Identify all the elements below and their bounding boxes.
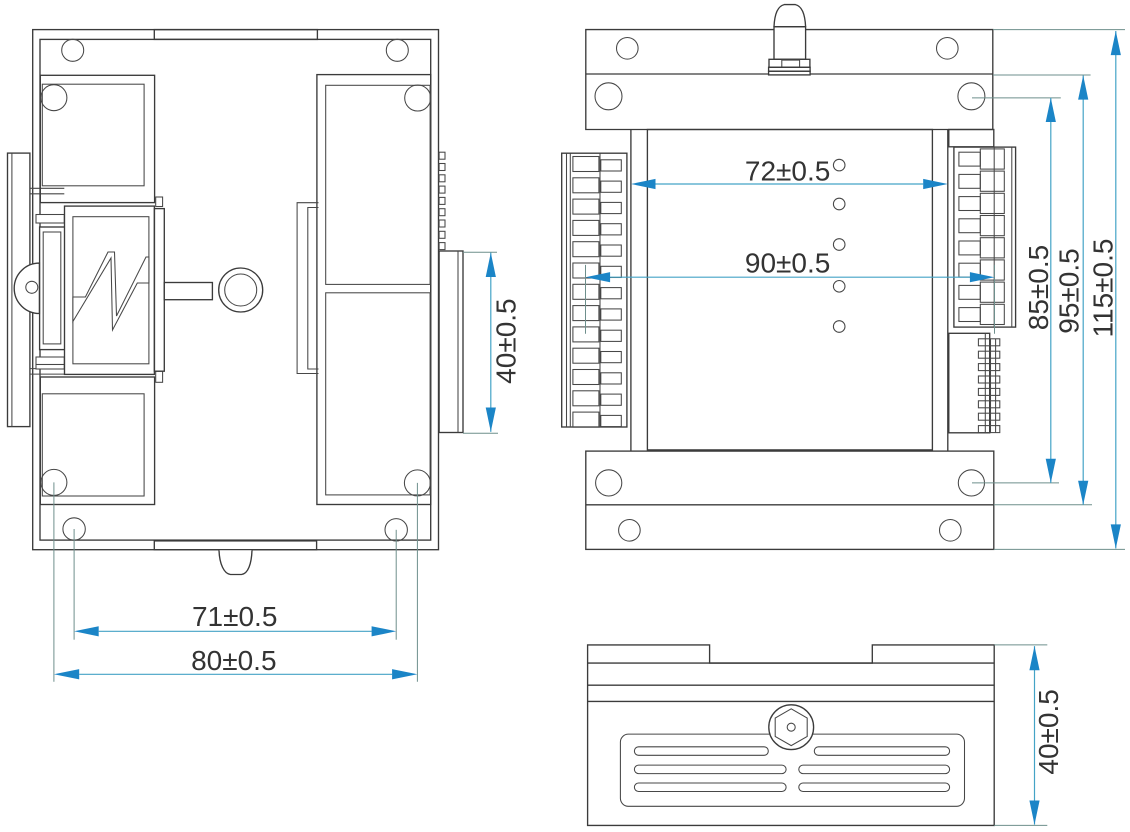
svg-text:40±0.5: 40±0.5 — [1033, 689, 1064, 774]
svg-text:95±0.5: 95±0.5 — [1054, 248, 1085, 333]
svg-text:72±0.5: 72±0.5 — [745, 156, 830, 187]
svg-text:85±0.5: 85±0.5 — [1023, 245, 1054, 330]
svg-text:90±0.5: 90±0.5 — [745, 248, 830, 279]
svg-text:80±0.5: 80±0.5 — [191, 645, 276, 676]
svg-text:40±0.5: 40±0.5 — [490, 298, 521, 383]
svg-text:115±0.5: 115±0.5 — [1088, 239, 1119, 338]
svg-text:71±0.5: 71±0.5 — [192, 601, 277, 632]
